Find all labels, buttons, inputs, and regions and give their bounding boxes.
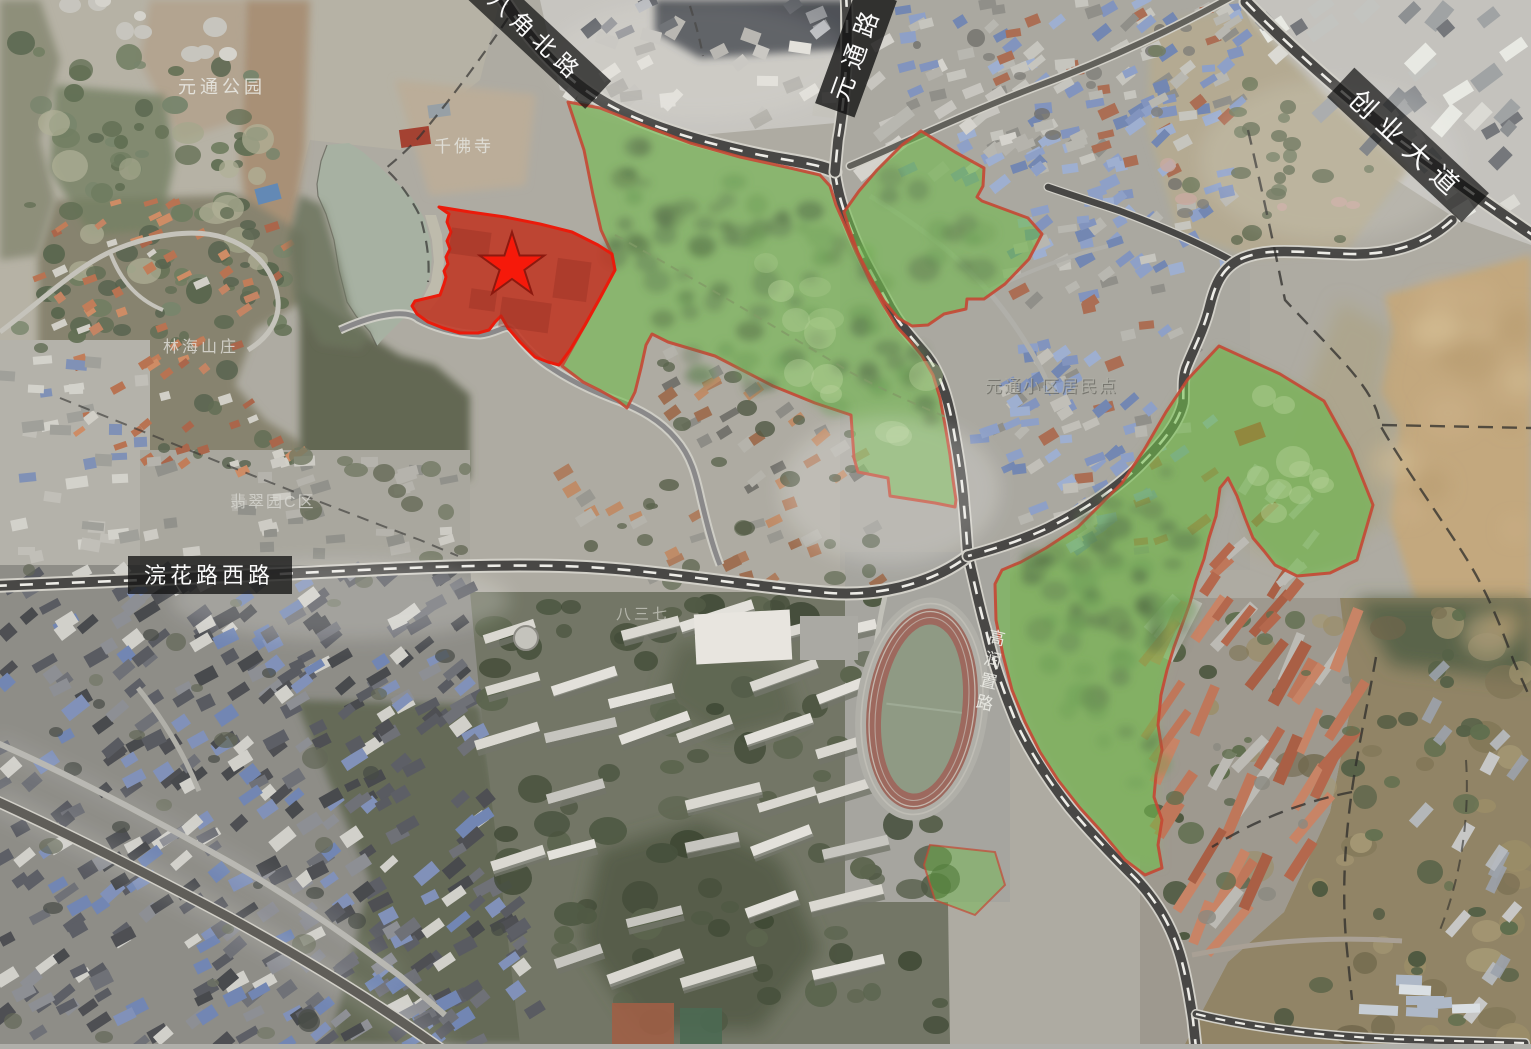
svg-text:八三七: 八三七: [616, 606, 670, 623]
svg-text:元通小区居民点: 元通小区居民点: [985, 377, 1118, 396]
svg-text:翡翠园C区: 翡翠园C区: [230, 493, 316, 511]
svg-text:林海山庄: 林海山庄: [163, 338, 239, 356]
svg-text:千佛寺: 千佛寺: [434, 137, 494, 156]
svg-text:元通公园: 元通公园: [178, 77, 266, 97]
svg-text:浣花路西路: 浣花路西路: [144, 563, 274, 588]
